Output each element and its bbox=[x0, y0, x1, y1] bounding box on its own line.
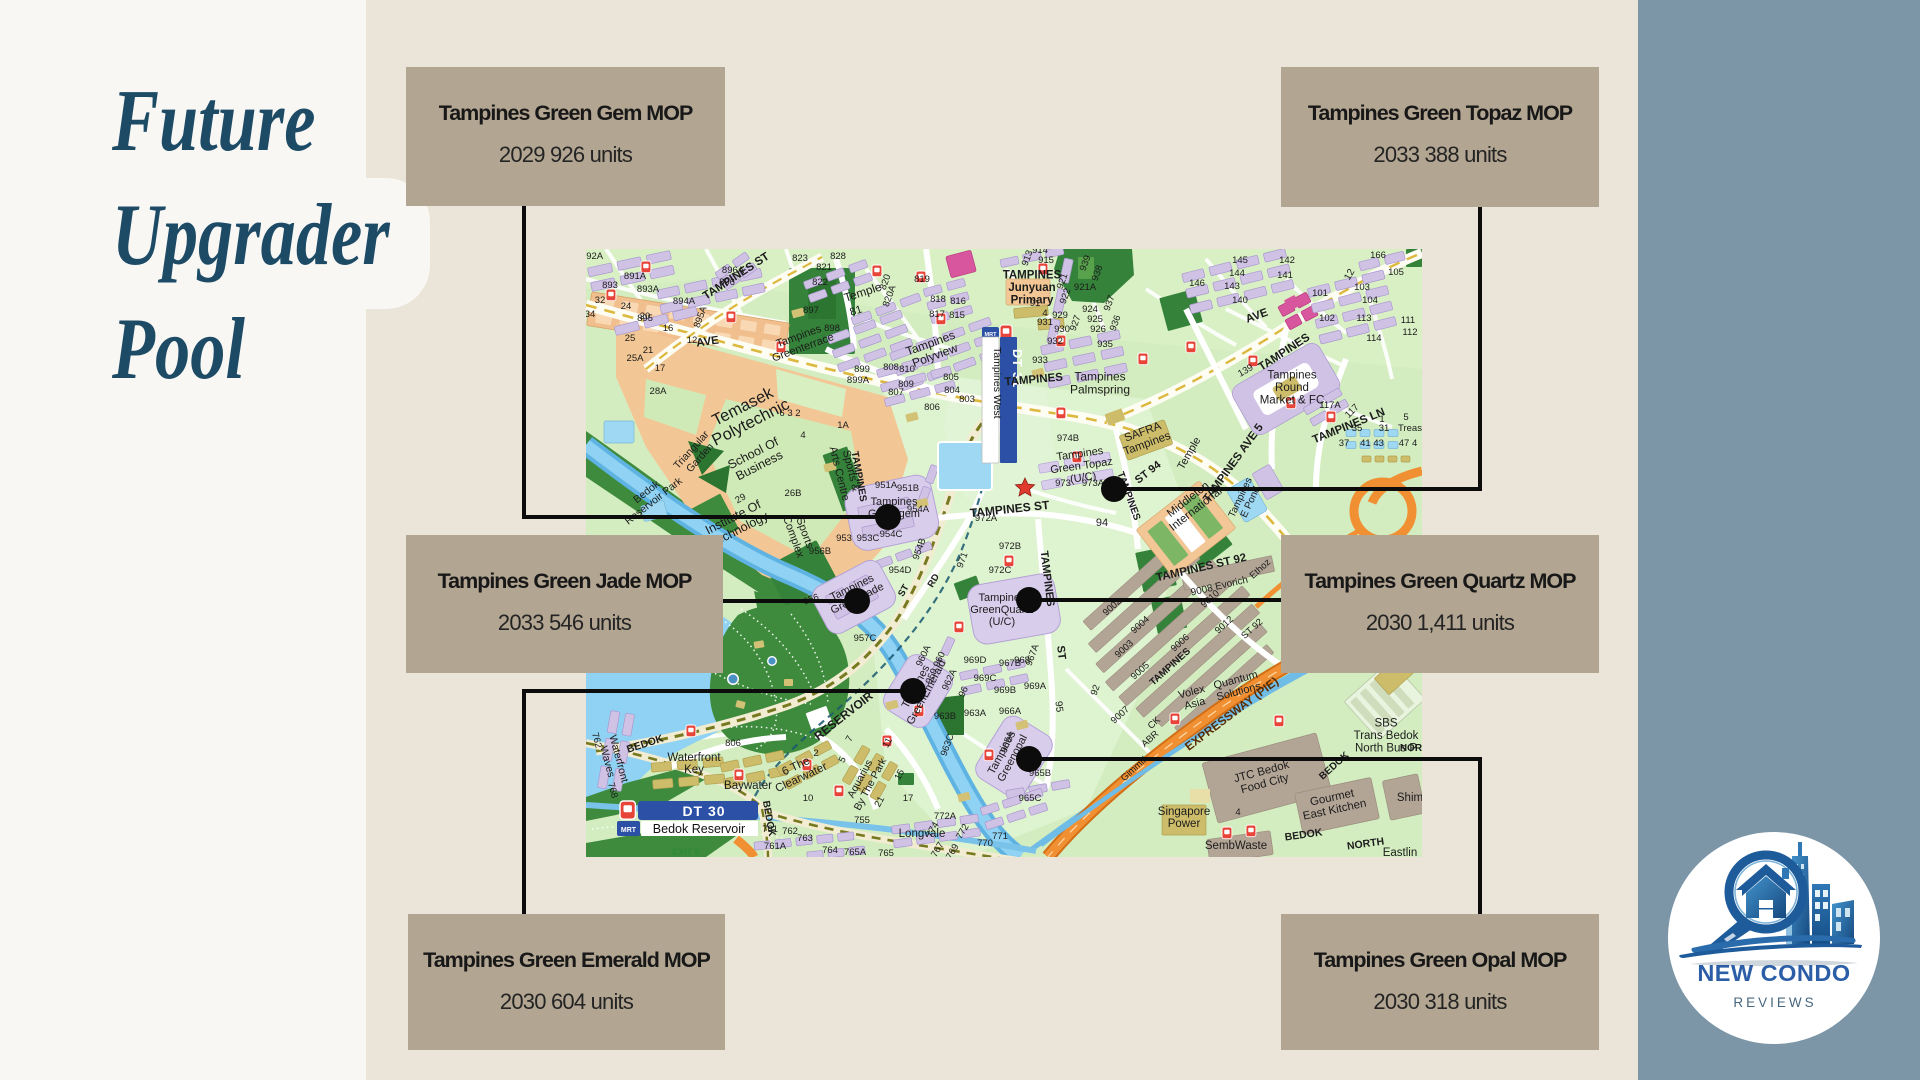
svg-text:755: 755 bbox=[854, 815, 870, 826]
svg-text:12: 12 bbox=[687, 335, 698, 346]
svg-text:113: 113 bbox=[1356, 313, 1371, 324]
svg-text:805: 805 bbox=[943, 372, 959, 383]
svg-text:956B: 956B bbox=[809, 546, 831, 557]
svg-text:965C: 965C bbox=[1019, 793, 1042, 804]
svg-text:893: 893 bbox=[602, 280, 618, 291]
svg-text:935: 935 bbox=[1097, 339, 1113, 350]
svg-text:140: 140 bbox=[1232, 295, 1248, 306]
svg-text:146: 146 bbox=[1189, 278, 1205, 289]
svg-text:761: 761 bbox=[762, 824, 778, 835]
svg-text:4: 4 bbox=[1042, 308, 1047, 319]
svg-text:TAMPINES: TAMPINES bbox=[1003, 270, 1062, 282]
svg-text:Trans Bedok: Trans Bedok bbox=[1354, 730, 1419, 742]
svg-text:Junyuan: Junyuan bbox=[1008, 282, 1055, 294]
svg-text:34: 34 bbox=[586, 309, 595, 320]
svg-text:899: 899 bbox=[854, 364, 870, 375]
svg-text:973: 973 bbox=[1055, 478, 1071, 489]
svg-text:969B: 969B bbox=[994, 685, 1016, 696]
svg-text:969A: 969A bbox=[1024, 681, 1047, 692]
svg-text:899A: 899A bbox=[847, 375, 870, 386]
svg-text:957C: 957C bbox=[854, 633, 877, 644]
svg-text:821: 821 bbox=[816, 262, 832, 273]
svg-text:1A: 1A bbox=[837, 420, 849, 431]
svg-text:4: 4 bbox=[1235, 807, 1240, 818]
svg-text:897: 897 bbox=[803, 305, 819, 316]
svg-text:47 4: 47 4 bbox=[1399, 438, 1418, 449]
svg-text:142: 142 bbox=[1279, 255, 1295, 266]
svg-text:104: 104 bbox=[1362, 295, 1378, 306]
svg-text:951B: 951B bbox=[897, 483, 919, 494]
svg-text:95: 95 bbox=[1052, 701, 1064, 714]
svg-text:102: 102 bbox=[1319, 313, 1335, 324]
svg-text:972C: 972C bbox=[989, 565, 1012, 576]
svg-text:963B: 963B bbox=[934, 711, 956, 722]
svg-text:NORT: NORT bbox=[1400, 743, 1422, 754]
svg-text:Bedok Reservoir: Bedok Reservoir bbox=[653, 822, 745, 836]
svg-text:969D: 969D bbox=[964, 655, 987, 666]
svg-text:951A: 951A bbox=[875, 480, 898, 491]
svg-text:896A: 896A bbox=[722, 265, 745, 276]
svg-text:822: 822 bbox=[812, 277, 828, 288]
svg-text:144: 144 bbox=[1229, 268, 1245, 279]
svg-text:16: 16 bbox=[663, 323, 674, 334]
svg-text:806: 806 bbox=[725, 738, 741, 749]
svg-text:111: 111 bbox=[1401, 315, 1415, 326]
svg-text:803: 803 bbox=[959, 394, 975, 405]
svg-text:(U/C): (U/C) bbox=[989, 616, 1015, 628]
svg-text:26B: 26B bbox=[785, 488, 802, 499]
svg-text:Tampines: Tampines bbox=[1267, 370, 1316, 382]
svg-text:810: 810 bbox=[899, 364, 915, 375]
svg-text:103: 103 bbox=[1354, 282, 1370, 293]
svg-text:Eastlin: Eastlin bbox=[1383, 847, 1418, 857]
svg-text:817: 817 bbox=[929, 309, 945, 320]
svg-text:972A: 972A bbox=[975, 513, 998, 524]
svg-text:28A: 28A bbox=[650, 386, 668, 397]
svg-text:Singapore: Singapore bbox=[1158, 806, 1210, 818]
svg-text:954A: 954A bbox=[907, 504, 930, 515]
svg-text:DT 30: DT 30 bbox=[682, 803, 725, 819]
svg-text:20: 20 bbox=[640, 311, 651, 322]
svg-text:894A: 894A bbox=[673, 296, 696, 307]
svg-text:Waterfront: Waterfront bbox=[667, 752, 721, 764]
svg-text:892A: 892A bbox=[586, 251, 604, 262]
svg-text:41 43: 41 43 bbox=[1360, 438, 1384, 449]
svg-text:771: 771 bbox=[992, 831, 1008, 842]
svg-text:933: 933 bbox=[1032, 355, 1048, 366]
svg-text:761A: 761A bbox=[764, 841, 787, 852]
svg-text:953C: 953C bbox=[857, 533, 880, 544]
svg-text:819: 819 bbox=[914, 274, 930, 285]
svg-text:815: 815 bbox=[949, 310, 965, 321]
svg-text:NEW CONDO: NEW CONDO bbox=[1697, 960, 1850, 986]
svg-text:145: 145 bbox=[1232, 255, 1248, 266]
svg-text:35: 35 bbox=[1352, 423, 1363, 434]
svg-text:105: 105 bbox=[1388, 267, 1404, 278]
svg-text:954C: 954C bbox=[880, 529, 903, 540]
svg-text:963A: 963A bbox=[964, 708, 987, 719]
svg-text:17: 17 bbox=[903, 793, 914, 804]
svg-text:SBS: SBS bbox=[1374, 718, 1397, 730]
svg-text:806: 806 bbox=[924, 402, 940, 413]
svg-text:6 3 2: 6 3 2 bbox=[779, 408, 800, 419]
svg-text:4: 4 bbox=[800, 430, 805, 441]
svg-text:807: 807 bbox=[888, 387, 904, 398]
svg-text:765A: 765A bbox=[844, 847, 867, 857]
svg-text:770: 770 bbox=[977, 838, 993, 849]
svg-text:REVIEWS: REVIEWS bbox=[1733, 995, 1816, 1010]
svg-text:816: 816 bbox=[950, 296, 966, 307]
svg-text:117A: 117A bbox=[1319, 400, 1341, 411]
svg-text:921A: 921A bbox=[1074, 282, 1097, 293]
svg-text:2: 2 bbox=[813, 748, 818, 759]
svg-text:966A: 966A bbox=[999, 706, 1022, 717]
svg-text:94: 94 bbox=[1096, 517, 1108, 529]
svg-text:932: 932 bbox=[1047, 336, 1063, 347]
svg-text:828: 828 bbox=[830, 251, 846, 262]
svg-text:Tampines: Tampines bbox=[1074, 370, 1125, 384]
svg-text:972B: 972B bbox=[999, 541, 1021, 552]
svg-text:808: 808 bbox=[883, 362, 899, 373]
svg-text:Power: Power bbox=[1168, 818, 1201, 830]
svg-text:Key: Key bbox=[684, 764, 704, 776]
svg-text:891A: 891A bbox=[624, 271, 647, 282]
svg-text:Round: Round bbox=[1275, 382, 1309, 394]
svg-text:24: 24 bbox=[621, 301, 632, 312]
svg-text:SembWaste: SembWaste bbox=[1205, 840, 1267, 852]
svg-text:10: 10 bbox=[803, 793, 814, 804]
svg-text:Market & FC: Market & FC bbox=[1260, 395, 1325, 407]
svg-text:823: 823 bbox=[792, 253, 808, 264]
svg-text:926: 926 bbox=[1090, 324, 1106, 335]
svg-text:21: 21 bbox=[643, 345, 654, 356]
svg-text:32: 32 bbox=[595, 295, 606, 306]
svg-text:114: 114 bbox=[1366, 333, 1381, 344]
svg-text:896: 896 bbox=[719, 277, 735, 288]
svg-text:898: 898 bbox=[824, 323, 840, 334]
svg-text:818: 818 bbox=[930, 294, 946, 305]
svg-text:764: 764 bbox=[822, 845, 838, 856]
svg-text:763: 763 bbox=[797, 833, 813, 844]
svg-text:MRT: MRT bbox=[621, 827, 637, 834]
svg-text:37: 37 bbox=[1339, 438, 1350, 449]
svg-text:25A: 25A bbox=[627, 353, 645, 364]
svg-text:Tampines West: Tampines West bbox=[991, 347, 1003, 419]
svg-text:974B: 974B bbox=[1057, 433, 1079, 444]
svg-text:31: 31 bbox=[1379, 423, 1390, 434]
svg-text:772A: 772A bbox=[934, 811, 957, 822]
svg-text:5: 5 bbox=[1403, 412, 1408, 423]
svg-text:Treas: Treas bbox=[1398, 423, 1422, 434]
svg-text:Shim: Shim bbox=[1397, 792, 1422, 804]
svg-text:969C: 969C bbox=[974, 673, 997, 684]
svg-text:893A: 893A bbox=[637, 284, 660, 295]
svg-text:141: 141 bbox=[1277, 270, 1293, 281]
svg-text:804: 804 bbox=[944, 385, 960, 396]
svg-text:765: 765 bbox=[878, 848, 894, 857]
svg-text:ST: ST bbox=[1054, 645, 1068, 661]
svg-text:101: 101 bbox=[1312, 288, 1328, 299]
svg-text:762: 762 bbox=[782, 826, 798, 837]
svg-text:915: 915 bbox=[1038, 255, 1054, 266]
svg-text:929: 929 bbox=[1052, 310, 1068, 321]
svg-text:MRT: MRT bbox=[985, 332, 998, 338]
svg-text:EXIT 6: EXIT 6 bbox=[672, 847, 700, 857]
svg-text:112: 112 bbox=[1402, 327, 1417, 338]
svg-text:Palmspring: Palmspring bbox=[1070, 383, 1130, 397]
svg-text:954D: 954D bbox=[889, 565, 912, 576]
svg-text:17: 17 bbox=[655, 363, 666, 374]
svg-text:91: 91 bbox=[1030, 298, 1041, 309]
svg-text:25: 25 bbox=[625, 333, 636, 344]
svg-text:Baywater: Baywater bbox=[724, 780, 772, 792]
svg-text:143: 143 bbox=[1224, 281, 1240, 292]
svg-text:953: 953 bbox=[836, 533, 852, 544]
svg-text:166: 166 bbox=[1370, 250, 1386, 261]
